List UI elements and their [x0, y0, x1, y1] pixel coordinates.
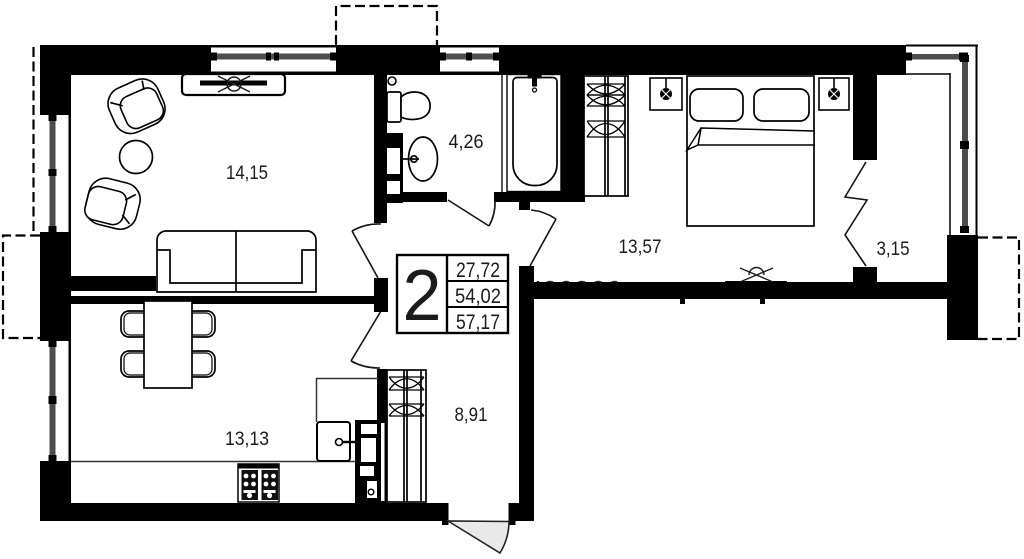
svg-text:27,72: 27,72 — [456, 259, 500, 282]
svg-text:57,17: 57,17 — [456, 311, 500, 334]
svg-text:2: 2 — [403, 256, 442, 336]
svg-text:4,26: 4,26 — [449, 132, 484, 153]
svg-text:8,91: 8,91 — [455, 405, 488, 426]
svg-text:14,15: 14,15 — [226, 163, 268, 184]
svg-text:13,13: 13,13 — [225, 429, 269, 450]
svg-text:3,15: 3,15 — [877, 239, 910, 260]
svg-text:13,57: 13,57 — [619, 237, 662, 258]
svg-text:54,02: 54,02 — [455, 285, 501, 308]
